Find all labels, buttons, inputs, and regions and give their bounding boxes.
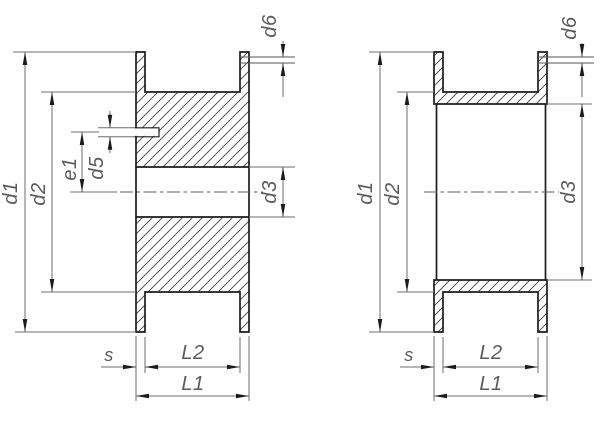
dim-label-s: s [404,345,414,365]
dim-label-d1: d1 [0,181,22,204]
dim-label-d5: d5 [86,156,108,180]
setscrew-slot-fill [135,128,159,135]
dim-label-d3: d3 [259,180,281,203]
pulley-technical-drawing: d1 d2 e1 d5 d6 [0,0,600,424]
dim-label-s: s [104,345,114,365]
canvas-background [0,0,600,424]
dim-label-d3: d3 [558,180,580,203]
dim-label-L1: L1 [181,373,204,395]
dim-label-d6: d6 [559,16,581,40]
dim-label-d6: d6 [259,14,281,38]
dim-label-e1: e1 [59,157,81,180]
dim-label-L2: L2 [181,342,204,364]
drawing-canvas: d1 d2 e1 d5 d6 [0,0,600,424]
dim-label-L2: L2 [479,342,502,364]
dim-label-d2: d2 [382,182,404,205]
dim-label-d1: d1 [355,181,377,204]
dim-label-d2: d2 [28,182,50,205]
dim-label-L1: L1 [479,373,502,395]
